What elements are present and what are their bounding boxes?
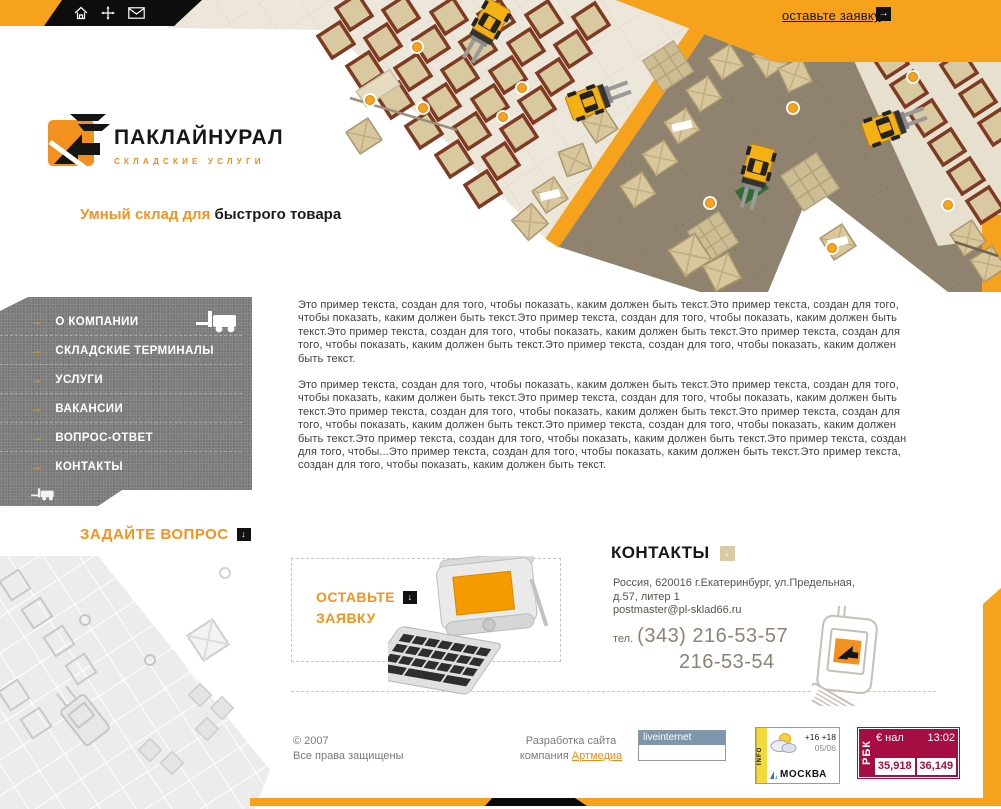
phone-prefix: тел.: [613, 633, 633, 645]
logo[interactable]: ПАКЛАЙНУРАЛ СКЛАДСКИЕ УСЛУГИ: [48, 112, 368, 174]
rbc-brand: РБК: [861, 731, 875, 775]
menu-arrow-icon: →: [30, 372, 42, 386]
paragraph-1: Это пример текста, создан для того, чтоб…: [298, 299, 910, 366]
request-link[interactable]: оставьте заявку: [782, 8, 881, 23]
liveinternet-badge[interactable]: liveinternet: [638, 730, 726, 761]
logo-icon: [48, 112, 112, 172]
blueprint-illustration: [0, 545, 340, 809]
liveinternet-label: liveinternet: [639, 731, 725, 745]
phone-illustration: [812, 606, 912, 706]
menu-arrow-icon: →: [30, 314, 42, 328]
tagline-rest: быстрого товара: [210, 206, 341, 223]
copyright: © 2007 Все права защищены: [293, 734, 403, 764]
main-content: Это пример текста, создан для того, чтоб…: [298, 299, 910, 486]
ask-question-link[interactable]: ЗАДАЙТЕ ВОПРОС: [80, 526, 229, 543]
request-arrow-button[interactable]: →: [876, 7, 891, 21]
contacts-section: КОНТАКТЫ ↓: [611, 543, 735, 563]
menu-arrow-icon: →: [30, 459, 42, 473]
menu-item-vacancies[interactable]: →ВАКАНСИИ: [0, 394, 242, 423]
home-icon[interactable]: [74, 6, 88, 20]
address-line-1: Россия, 620016 г.Екатеринбург, ул.Предел…: [613, 577, 855, 591]
logo-title: ПАКЛАЙНУРАЛ: [114, 126, 374, 150]
device-illustration: [388, 556, 552, 696]
rbc-rates-badge[interactable]: РБК € нал 13:02 35,918 36,149: [857, 727, 960, 779]
bottom-orange-bar: [250, 798, 1001, 806]
mail-icon[interactable]: [128, 7, 145, 19]
menu-arrow-icon: →: [30, 401, 42, 415]
phone-alt: 216-53-54: [679, 651, 775, 673]
logo-text: ПАКЛАЙНУРАЛ СКЛАДСКИЕ УСЛУГИ: [114, 126, 374, 166]
logo-subtitle: СКЛАДСКИЕ УСЛУГИ: [114, 157, 374, 166]
menu-item-contacts[interactable]: →КОНТАКТЫ: [0, 452, 242, 480]
weather-temps: +16 +18: [805, 732, 836, 742]
sun-cloud-icon: [768, 731, 798, 755]
forklift-icon-small: [30, 487, 56, 501]
contacts-arrow-button[interactable]: ↓: [720, 546, 735, 561]
rbc-currency-pair: € нал: [876, 732, 904, 744]
right-orange-stripe: [983, 588, 1001, 806]
rbc-rate-buy: 35,918: [875, 758, 915, 775]
forklift-icon: [194, 309, 240, 333]
developer-credit: Разработка сайта компания Артмедиа: [492, 734, 650, 764]
contacts-address: Россия, 620016 г.Екатеринбург, ул.Предел…: [613, 577, 855, 618]
weather-badge[interactable]: INFO +16 +18 05/06 МОСКВА: [755, 727, 840, 784]
copyright-rights: Все права защищены: [293, 749, 403, 764]
address-line-2: д.57, литер 1: [613, 591, 855, 605]
weather-date: 05/06: [815, 743, 836, 753]
artmedia-link[interactable]: Артмедиа: [572, 750, 622, 762]
rbc-rate-sell: 36,149: [917, 758, 957, 775]
ask-question-arrow-button[interactable]: ↓: [237, 528, 251, 541]
sail-icon: [769, 770, 778, 780]
copyright-year: © 2007: [293, 734, 403, 749]
phone-main: (343) 216-53-57: [637, 625, 788, 647]
menu-item-services[interactable]: →УСЛУГИ: [0, 365, 242, 394]
page: оставьте заявку → ПАКЛАЙНУРАЛ СКЛАДСКИЕ …: [0, 0, 1001, 809]
ask-question: ЗАДАЙТЕ ВОПРОС↓: [80, 526, 251, 543]
contacts-email: postmaster@pl-sklad66.ru: [613, 604, 855, 618]
menu-item-faq[interactable]: →ВОПРОС-ОТВЕТ: [0, 423, 242, 452]
contacts-title: КОНТАКТЫ: [611, 543, 710, 563]
bottom-black-segment: [485, 798, 587, 806]
menu-arrow-icon: →: [30, 430, 42, 444]
menu-arrow-icon: →: [30, 343, 42, 357]
sidebar-menu: →О КОМПАНИИ →СКЛАДСКИЕ ТЕРМИНАЛЫ →УСЛУГИ…: [0, 297, 252, 506]
contacts-phones: тел.(343) 216-53-57 216-53-54: [613, 625, 788, 674]
rbc-time: 13:02: [927, 732, 955, 744]
menu-item-terminals[interactable]: →СКЛАДСКИЕ ТЕРМИНАЛЫ: [0, 336, 242, 365]
tagline-highlight: Умный склад для: [80, 206, 210, 223]
dev-line-1: Разработка сайта: [492, 734, 650, 749]
sitemap-icon[interactable]: [101, 6, 115, 20]
dev-prefix: компания: [520, 750, 572, 762]
tagline: Умный склад для быстрого товара: [80, 206, 341, 223]
weather-city: МОСКВА: [780, 769, 827, 780]
weather-info-strip: INFO: [756, 728, 767, 783]
paragraph-2: Это пример текста, создан для того, чтоб…: [298, 379, 910, 473]
